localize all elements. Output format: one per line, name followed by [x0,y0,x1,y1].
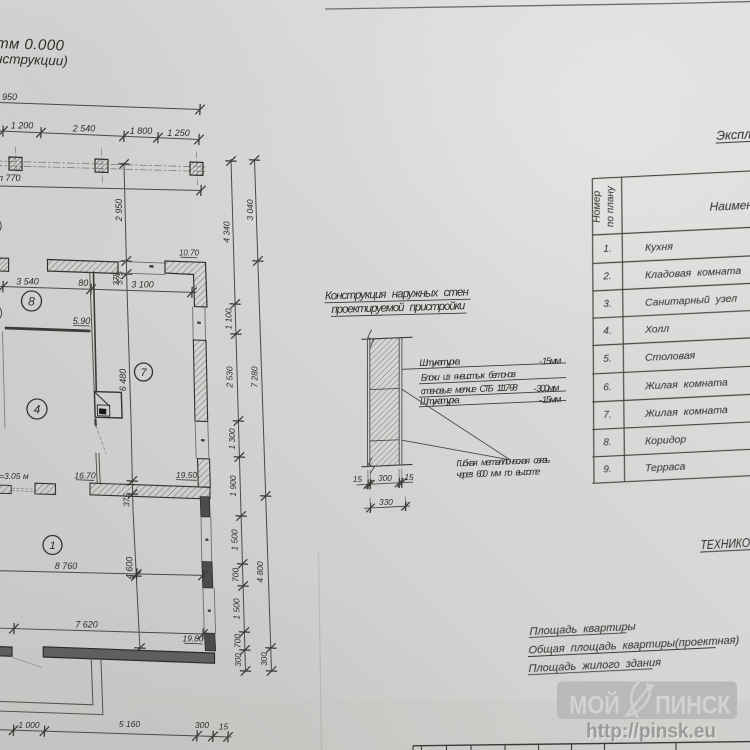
svg-text:300: 300 [378,474,392,483]
svg-text:1 200: 1 200 [11,121,34,131]
svg-text:1 300: 1 300 [227,428,237,450]
svg-text:Столовая: Столовая [645,350,696,364]
svg-text:700: 700 [231,568,241,582]
svg-text:300: 300 [195,720,209,730]
svg-text:7: 7 [140,367,147,379]
svg-text:4 340: 4 340 [222,221,232,243]
svg-text:15: 15 [219,722,229,732]
svg-text:5.: 5. [603,354,611,365]
svg-text:- 15мм: - 15мм [539,394,562,406]
svg-text:4.: 4. [603,326,611,337]
svg-text:5.90: 5.90 [73,316,91,326]
svg-text:1: 1 [49,540,55,552]
svg-text:по плану: по плану [606,185,617,228]
svg-text:15: 15 [405,473,415,482]
svg-text:4: 4 [34,402,41,416]
svg-text:1 500: 1 500 [230,529,240,551]
svg-text:80: 80 [78,278,88,288]
svg-text:2 950: 2 950 [114,199,124,223]
svg-text:1.: 1. [603,243,611,254]
svg-text:1 000: 1 000 [18,720,40,730]
svg-text:3 540: 3 540 [16,276,39,286]
svg-text:300: 300 [260,652,269,666]
svg-text:Экспли: Экспли [716,126,750,143]
svg-text:Наименован: Наименован [710,197,750,214]
svg-text:8: 8 [28,294,35,308]
svg-text:Номер: Номер [591,190,603,223]
svg-text:8.: 8. [603,437,611,448]
svg-text:15: 15 [353,475,363,484]
svg-text:2 530: 2 530 [225,366,235,389]
svg-text:Коридор: Коридор [645,433,686,447]
svg-text:МОЙ: МОЙ [569,690,620,720]
svg-text:2 540: 2 540 [72,124,96,134]
svg-text:1 800: 1 800 [130,126,153,136]
svg-text:4 600: 4 600 [125,557,135,580]
svg-text:19.50: 19.50 [176,470,198,480]
svg-text:1 250: 1 250 [167,128,190,138]
svg-text:300: 300 [234,653,243,667]
svg-text:5 160: 5 160 [119,719,141,729]
svg-text:7 280: 7 280 [250,366,260,388]
svg-text:Терраса: Терраса [645,460,686,474]
svg-text:375: 375 [112,272,121,286]
svg-text:330: 330 [379,498,393,507]
svg-text:950: 950 [2,92,17,102]
svg-text:16.70: 16.70 [74,470,96,480]
svg-text:7.: 7. [603,410,611,421]
svg-text:Холл: Холл [644,323,669,336]
svg-text:1 500: 1 500 [232,598,242,620]
svg-text:Кухня: Кухня [645,240,673,253]
svg-text:7 620: 7 620 [75,619,98,629]
svg-text:Штукатурка: Штукатурка [419,356,460,369]
svg-text:1 100: 1 100 [224,308,234,330]
svg-text:нструкции): нструкции) [0,51,68,69]
svg-text:8 760: 8 760 [55,561,78,571]
svg-text:700: 700 [233,634,243,648]
svg-text:9.: 9. [603,464,611,475]
svg-text:ПИНСК: ПИНСК [655,692,731,720]
svg-text:3 040: 3 040 [245,199,255,221]
svg-text:10.70: 10.70 [179,249,200,258]
svg-text:2.: 2. [602,271,611,282]
svg-text:6 480: 6 480 [118,369,128,392]
svg-text:1 900: 1 900 [228,475,238,497]
svg-text:http://pinsk.eu: http://pinsk.eu [586,720,716,743]
svg-text:4 800: 4 800 [255,561,265,583]
svg-text:=3.05 м: =3.05 м [0,471,29,481]
svg-text:- 15мм: - 15мм [539,356,562,368]
svg-text:19.80: 19.80 [182,634,204,644]
svg-text:п 770: п 770 [0,173,20,183]
svg-text:3 100: 3 100 [131,280,154,290]
svg-text:Штукатурка: Штукатурка [420,395,460,408]
svg-text:3.: 3. [603,299,611,310]
svg-text:6.: 6. [603,382,611,393]
svg-text:- 300мм: - 300мм [533,383,560,395]
